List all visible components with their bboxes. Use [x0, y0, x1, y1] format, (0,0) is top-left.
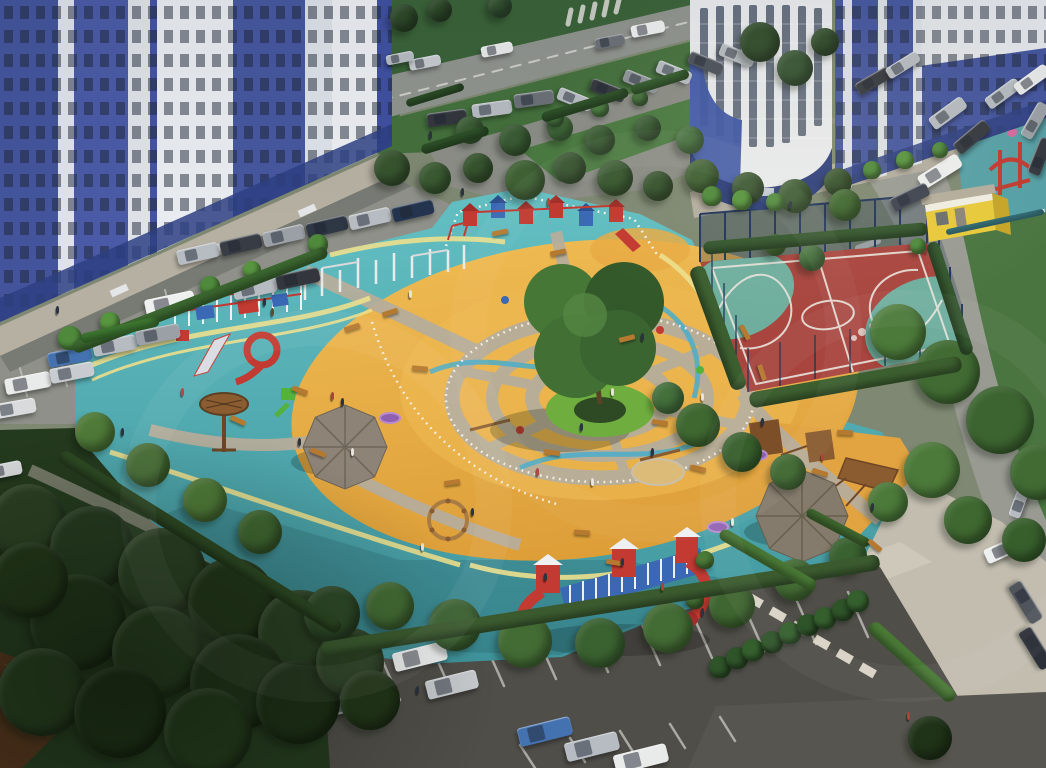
- round-tower-building: [690, 0, 832, 210]
- sand-pit: [632, 459, 684, 485]
- scene-svg: [0, 0, 1046, 768]
- listing-photo[interactable]: [0, 0, 1046, 768]
